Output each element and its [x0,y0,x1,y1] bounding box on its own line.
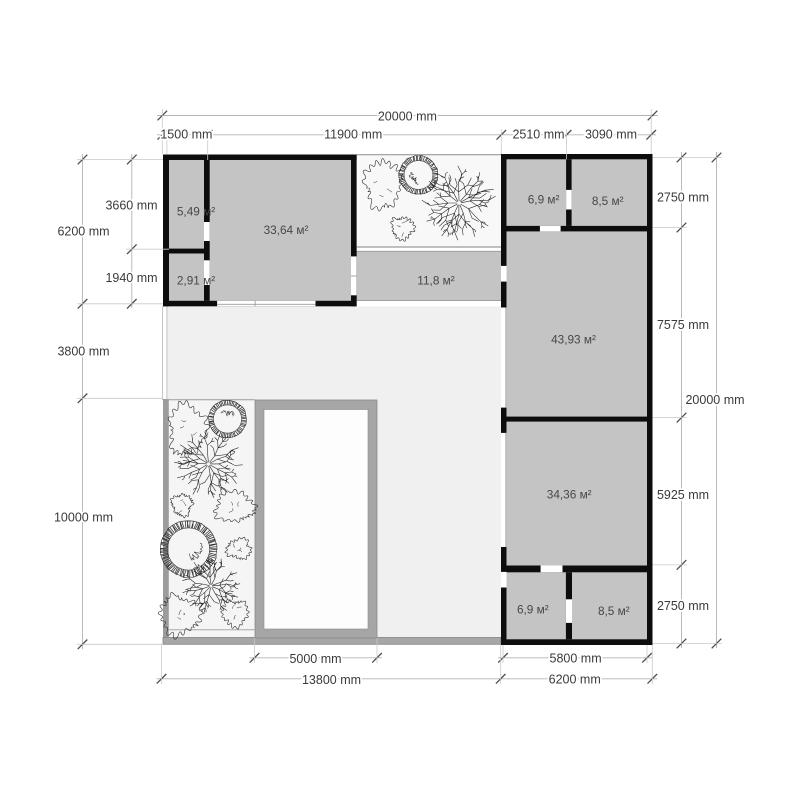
svg-text:6,9 м²: 6,9 м² [517,603,549,617]
svg-text:5000 mm: 5000 mm [289,652,341,666]
svg-text:7575 mm: 7575 mm [657,318,709,332]
svg-text:43,93 м²: 43,93 м² [551,333,596,347]
svg-text:20000 mm: 20000 mm [685,393,744,407]
svg-text:8,5 м²: 8,5 м² [592,194,624,208]
svg-text:6200 mm: 6200 mm [549,672,601,686]
svg-text:3660 mm: 3660 mm [105,198,157,212]
svg-text:2750 mm: 2750 mm [657,599,709,613]
svg-text:1500 mm: 1500 mm [160,128,212,142]
svg-text:11900 mm: 11900 mm [324,128,382,142]
svg-text:6200 mm: 6200 mm [57,224,109,238]
svg-text:3800 mm: 3800 mm [57,345,109,359]
svg-text:1940 mm: 1940 mm [105,271,157,285]
svg-text:5800 mm: 5800 mm [550,651,602,665]
svg-text:6,9 м²: 6,9 м² [528,193,560,207]
svg-text:2750 mm: 2750 mm [657,190,709,204]
svg-text:20000 mm: 20000 mm [378,109,437,123]
svg-text:34,36 м²: 34,36 м² [547,488,592,502]
svg-text:2510 mm: 2510 mm [512,128,564,142]
svg-text:5925 mm: 5925 mm [657,488,709,502]
svg-text:3090 mm: 3090 mm [585,128,637,142]
svg-text:5,49 м²: 5,49 м² [177,205,215,219]
svg-text:13800 mm: 13800 mm [302,673,361,687]
svg-text:8,5 м²: 8,5 м² [598,604,630,618]
svg-text:2,91 м²: 2,91 м² [177,273,215,287]
svg-text:11,8 м²: 11,8 м² [417,274,454,288]
svg-text:33,64 м²: 33,64 м² [264,223,309,237]
svg-text:10000 mm: 10000 mm [54,510,113,524]
